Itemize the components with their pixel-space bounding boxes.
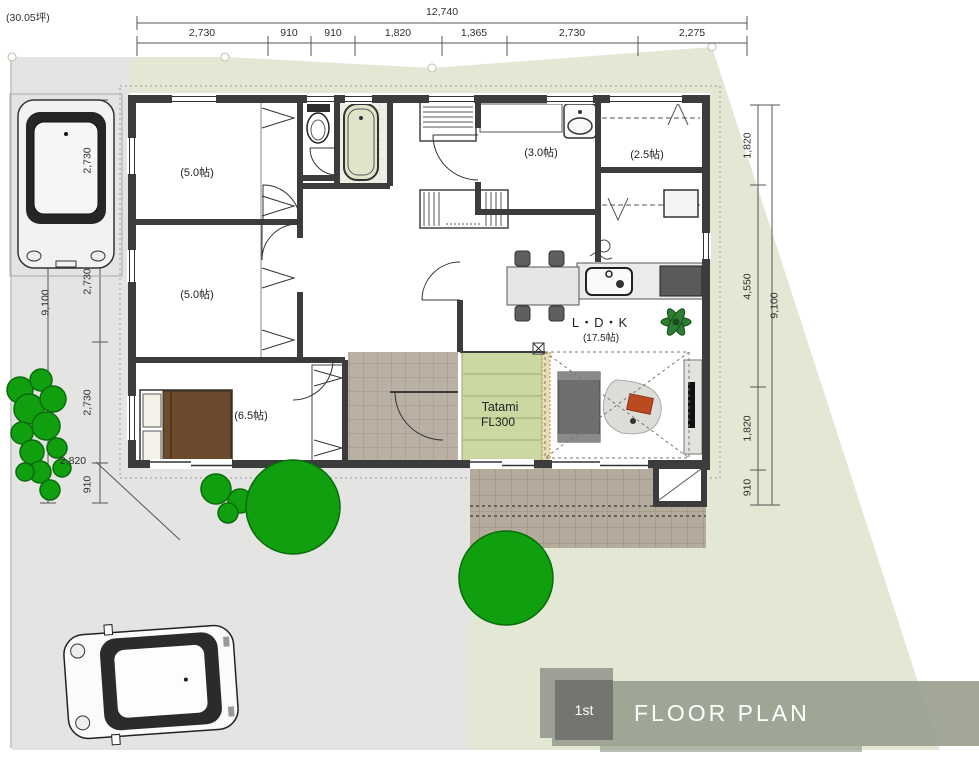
dim-left-seg-1: 2,730 [82,252,95,312]
dim-top-seg-5: 2,730 [537,27,607,40]
dim-top-seg-2: 910 [298,27,368,40]
dim-top-seg-6: 2,275 [657,27,727,40]
dim-approach: 2,820 [47,455,99,468]
tv-board-icon [684,360,702,454]
dim-top-seg-4: 1,365 [439,27,509,40]
dim-left-total: 9,100 [40,273,53,333]
room-label-wic: (2.5帖) [607,149,687,162]
room-label-bedroom-b: (5.0帖) [157,289,237,302]
room-label-master-bedroom: (6.5帖) [211,410,291,423]
floor-plan-banner: FLOOR PLAN [552,681,979,746]
site-area-label: (30.05坪) [6,12,76,25]
dim-right-seg-1: 4,550 [742,257,755,317]
car-street-icon [62,616,240,748]
dim-top-seg-3: 1,820 [363,27,433,40]
bathtub-icon [344,104,378,180]
car-top-icon [10,94,122,276]
room-label-ldk: L・D・K [560,316,640,329]
bedroom-closet-icon [312,365,345,464]
dim-top-seg-0: 2,730 [167,27,237,40]
dim-left-seg-0: 2,730 [82,131,95,191]
room-label-ldk-size: (17.5帖) [561,332,641,345]
floor-badge: 1st [555,680,613,740]
dim-right-seg-0: 1,820 [742,116,755,176]
dim-top-total: 12,740 [392,6,492,19]
banner-shadow [600,746,862,752]
room-label-tatami-fl: FL300 [467,416,529,429]
dim-right-total: 9,100 [769,276,782,336]
dim-right-seg-3: 910 [742,458,755,518]
dim-left-seg-2: 2,730 [82,373,95,433]
floor-plan-canvas [0,0,979,762]
sofa-icon [558,372,600,442]
kitchen-counter-icon [577,263,705,299]
porch-step [656,466,704,504]
floor-plan-page: (30.05坪) 12,740 2,730 910 910 1,820 1,36… [0,0,979,762]
entrance-tiles [348,352,458,466]
floor-plan-title: FLOOR PLAN [634,681,810,746]
room-label-bedroom-a: (5.0帖) [157,167,237,180]
room-label-washroom: (3.0帖) [501,147,581,160]
bed-icon [140,390,232,466]
dim-right-seg-2: 1,820 [742,399,755,459]
room-label-tatami: Tatami [469,401,531,414]
toilet-icon [307,100,330,143]
bathroom [340,100,388,186]
fridge-icon [664,190,698,217]
